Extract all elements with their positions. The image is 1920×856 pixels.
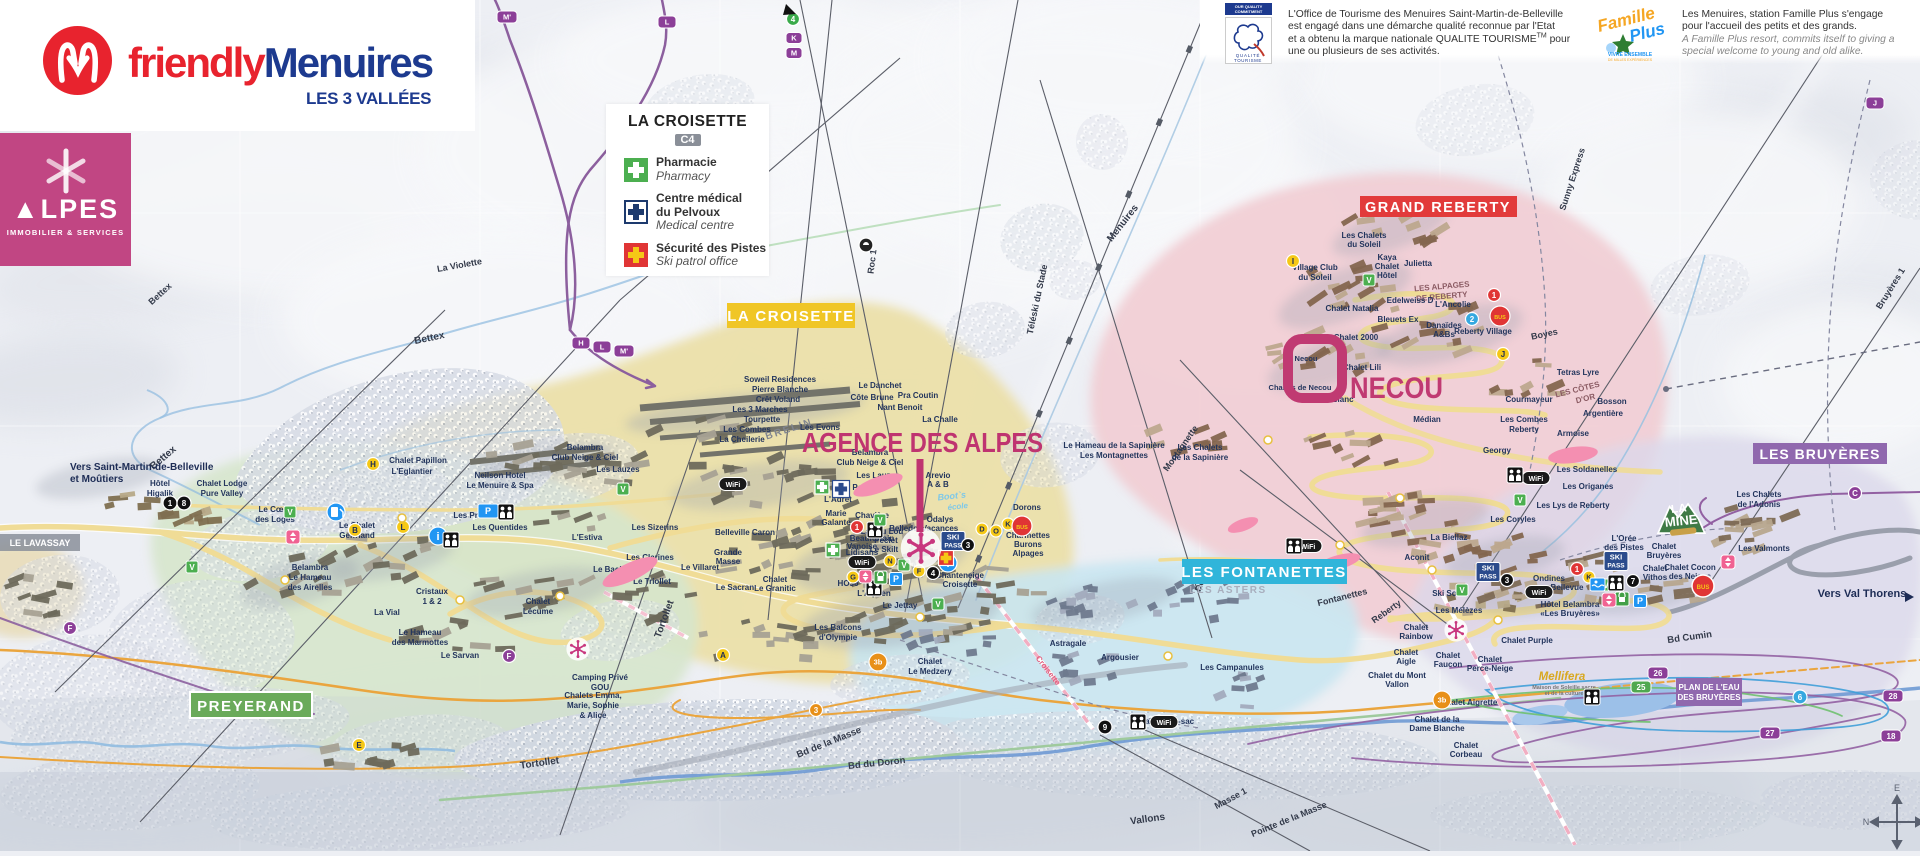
svg-text:du Soleil: du Soleil	[1298, 273, 1331, 282]
svg-text:Vallon: Vallon	[1385, 680, 1409, 689]
svg-text:Reberty: Reberty	[1509, 425, 1539, 434]
svg-text:Hôtel Belambra: Hôtel Belambra	[1541, 600, 1600, 609]
svg-text:Les Campanules: Les Campanules	[1200, 663, 1264, 672]
svg-text:V: V	[287, 508, 293, 517]
svg-text:Les Chalets: Les Chalets	[1342, 231, 1387, 240]
svg-text:des Pistes: des Pistes	[1604, 543, 1644, 552]
svg-text:Julietta: Julietta	[1404, 259, 1433, 268]
svg-text:H: H	[370, 460, 376, 469]
svg-text:B: B	[352, 526, 358, 535]
svg-text:LA CROISETTE: LA CROISETTE	[727, 308, 854, 325]
svg-text:Georgy: Georgy	[1483, 446, 1512, 455]
svg-text:Chalets Emma,: Chalets Emma,	[564, 691, 621, 700]
svg-text:des Airelles: des Airelles	[288, 583, 333, 592]
svg-text:Bleuets Ex: Bleuets Ex	[1378, 315, 1419, 324]
svg-text:4: 4	[791, 15, 796, 24]
svg-text:de la Sapinière: de la Sapinière	[1172, 453, 1229, 462]
svg-text:PASS: PASS	[1479, 574, 1497, 581]
svg-text:H: H	[578, 339, 583, 348]
svg-text:Soweil Residences: Soweil Residences	[744, 375, 817, 384]
svg-text:Le Hameau: Le Hameau	[399, 628, 442, 637]
svg-text:Rainbow: Rainbow	[1399, 632, 1433, 641]
svg-text:Odalys: Odalys	[927, 515, 954, 524]
svg-text:Necou: Necou	[1295, 354, 1318, 363]
svg-text:d'Olympie: d'Olympie	[819, 633, 858, 642]
svg-text:Vers Val Thorens: Vers Val Thorens	[1818, 588, 1907, 600]
svg-text:L'Eglantier: L'Eglantier	[391, 467, 432, 476]
svg-text:1: 1	[855, 523, 860, 532]
svg-text:3: 3	[966, 541, 971, 550]
svg-text:GRAND REBERTY: GRAND REBERTY	[1365, 200, 1511, 216]
svg-text:et Moûtiers: et Moûtiers	[70, 474, 124, 485]
svg-text:Chalet: Chalet	[763, 575, 788, 584]
svg-text:PREYERAND: PREYERAND	[197, 698, 305, 715]
svg-text:DES BRUYÈRES: DES BRUYÈRES	[1677, 693, 1741, 702]
svg-text:Club Neige & Ciel: Club Neige & Ciel	[552, 453, 619, 462]
svg-text:I: I	[1292, 257, 1294, 266]
svg-text:V: V	[1459, 586, 1465, 595]
svg-text:Bosson: Bosson	[1597, 397, 1626, 406]
svg-text:O: O	[993, 527, 999, 536]
svg-text:K: K	[791, 34, 797, 43]
svg-text:P: P	[1637, 596, 1643, 606]
svg-text:1: 1	[168, 499, 173, 508]
svg-text:PASS: PASS	[1607, 563, 1625, 570]
svg-text:Vithos: Vithos	[1643, 573, 1668, 582]
svg-text:Galante: Galante	[821, 518, 851, 527]
svg-text:Marie: Marie	[826, 509, 847, 518]
svg-text:Dorons: Dorons	[1013, 503, 1042, 512]
svg-text:LES FONTANETTES: LES FONTANETTES	[1181, 564, 1347, 581]
svg-text:Chalet Purple: Chalet Purple	[1501, 636, 1553, 645]
svg-text:LES BRUYÈRES: LES BRUYÈRES	[1760, 446, 1881, 462]
svg-text:Corbeau: Corbeau	[1450, 750, 1483, 759]
svg-text:M: M	[791, 49, 797, 58]
svg-text:E: E	[356, 741, 362, 750]
svg-text:Chanteneige: Chanteneige	[936, 571, 985, 580]
svg-text:Le Skilt: Le Skilt	[870, 545, 899, 554]
svg-text:Chalets de Necou: Chalets de Necou	[1269, 383, 1332, 392]
svg-text:PLAN DE L'EAU: PLAN DE L'EAU	[1678, 683, 1739, 692]
svg-text:F: F	[507, 652, 512, 661]
svg-text:WiFi: WiFi	[1532, 590, 1547, 597]
svg-text:Chalet: Chalet	[1404, 623, 1429, 632]
svg-text:de l'Adonis: de l'Adonis	[1738, 500, 1781, 509]
svg-text:L'Orée: L'Orée	[1611, 534, 1637, 543]
svg-text:Hôtel: Hôtel	[150, 479, 170, 488]
svg-text:Les Balcons: Les Balcons	[814, 623, 862, 632]
svg-text:Chalet de la: Chalet de la	[1415, 715, 1460, 724]
svg-text:Chalet: Chalet	[1394, 648, 1419, 657]
svg-text:Pierre Blanche: Pierre Blanche	[752, 385, 809, 394]
svg-text:Grande: Grande	[714, 548, 743, 557]
svg-text:L'Ancolie: L'Ancolie	[1435, 300, 1471, 309]
svg-text:SKI: SKI	[947, 533, 960, 542]
svg-text:Dame Blanche: Dame Blanche	[1409, 724, 1465, 733]
svg-text:Club Neige & Ciel: Club Neige & Ciel	[837, 458, 904, 467]
svg-text:Bellevue: Bellevue	[1551, 583, 1584, 592]
svg-text:G: G	[850, 573, 856, 582]
svg-text:BUS: BUS	[1494, 315, 1506, 321]
svg-text:Le Menuire & Spa: Le Menuire & Spa	[466, 481, 534, 490]
svg-text:P: P	[893, 574, 899, 584]
svg-text:WiFi: WiFi	[1157, 720, 1172, 727]
svg-text:Cristaux: Cristaux	[416, 587, 449, 596]
svg-text:«Les Bruyères»: «Les Bruyères»	[1540, 609, 1600, 618]
svg-text:Les Chalets: Les Chalets	[1178, 443, 1223, 452]
svg-text:L: L	[665, 18, 670, 27]
svg-text:V: V	[877, 516, 883, 525]
svg-text:J: J	[1501, 350, 1505, 359]
svg-text:du Soleil: du Soleil	[1347, 240, 1380, 249]
svg-text:Courmayeur: Courmayeur	[1505, 395, 1552, 404]
svg-text:LE LAVASSAY: LE LAVASSAY	[10, 538, 71, 548]
svg-text:Les Lys de Reberty: Les Lys de Reberty	[1536, 501, 1610, 510]
svg-text:Chalet: Chalet	[1478, 655, 1503, 664]
svg-text:& Alice: & Alice	[580, 711, 607, 720]
svg-text:Alpages: Alpages	[1012, 549, 1044, 558]
svg-text:Côte Brune: Côte Brune	[850, 393, 894, 402]
svg-text:Kaya: Kaya	[1377, 253, 1397, 262]
svg-text:Argentière: Argentière	[1583, 409, 1624, 418]
svg-text:SKI: SKI	[1482, 564, 1495, 573]
svg-text:Le Triollet: Le Triollet	[633, 577, 671, 586]
svg-text:La Biellaz: La Biellaz	[1431, 533, 1468, 542]
svg-text:Tetras Lyre: Tetras Lyre	[1557, 368, 1600, 377]
svg-text:3b: 3b	[874, 658, 883, 667]
svg-text:D: D	[979, 525, 985, 534]
svg-text:2: 2	[1470, 315, 1475, 324]
svg-text:Le Villaret: Le Villaret	[681, 563, 719, 572]
svg-text:M': M'	[620, 347, 628, 356]
svg-text:8: 8	[182, 499, 187, 508]
svg-text:La Cheilerie: La Cheilerie	[719, 435, 765, 444]
svg-text:A & B: A & B	[927, 480, 949, 489]
svg-text:Reberty Village: Reberty Village	[1454, 327, 1512, 336]
svg-text:SKI: SKI	[1610, 553, 1623, 562]
svg-text:3b: 3b	[1438, 696, 1447, 705]
svg-text:Le Sarvan: Le Sarvan	[441, 651, 479, 660]
svg-text:Le Danchet: Le Danchet	[858, 381, 901, 390]
svg-text:6: 6	[1798, 693, 1803, 702]
svg-text:Les Montagnettes: Les Montagnettes	[1080, 451, 1149, 460]
svg-text:1: 1	[1575, 565, 1580, 574]
svg-text:Chalet Cocon: Chalet Cocon	[1664, 563, 1716, 572]
svg-text:Croisette: Croisette	[943, 580, 978, 589]
svg-text:Perce-Neige: Perce-Neige	[1467, 664, 1514, 673]
svg-text:E: E	[1894, 783, 1900, 793]
svg-text:Astragale: Astragale	[1050, 639, 1087, 648]
svg-text:3: 3	[814, 706, 819, 715]
svg-text:Les 3 Marches: Les 3 Marches	[732, 405, 788, 414]
svg-text:L: L	[600, 343, 605, 352]
svg-text:Les Origanes: Les Origanes	[1563, 482, 1614, 491]
svg-text:Hôtel: Hôtel	[1377, 271, 1397, 280]
svg-text:A&Bs: A&Bs	[1433, 330, 1455, 339]
svg-text:Belambra: Belambra	[567, 443, 604, 452]
svg-text:F: F	[68, 624, 73, 633]
svg-text:Les Chalets: Les Chalets	[1737, 490, 1782, 499]
svg-text:V: V	[901, 561, 907, 570]
svg-text:Bruyères: Bruyères	[1647, 551, 1682, 560]
svg-text:Chalet: Chalet	[1652, 542, 1677, 551]
svg-text:L: L	[401, 523, 406, 532]
svg-text:C: C	[1852, 489, 1858, 498]
svg-text:1 & 2: 1 & 2	[422, 597, 442, 606]
svg-text:Le Jettay: Le Jettay	[883, 601, 918, 610]
svg-text:3: 3	[1505, 576, 1510, 585]
svg-text:La Challe: La Challe	[922, 415, 958, 424]
svg-text:Burons: Burons	[1014, 540, 1043, 549]
svg-text:Belleville Caron: Belleville Caron	[715, 528, 775, 537]
svg-text:i: i	[436, 531, 439, 543]
svg-text:Le Medzery: Le Medzery	[908, 667, 952, 676]
svg-text:V: V	[189, 563, 195, 572]
svg-text:Edelweiss D: Edelweiss D	[1387, 296, 1434, 305]
svg-text:Argousier: Argousier	[1101, 653, 1139, 662]
svg-text:Belambra: Belambra	[292, 563, 329, 572]
svg-text:Aconit: Aconit	[1405, 553, 1430, 562]
svg-text:1: 1	[1492, 291, 1497, 300]
svg-text:Chalet: Chalet	[1436, 651, 1461, 660]
svg-text:Les Combes: Les Combes	[723, 425, 771, 434]
svg-text:TOURISME: TOURISME	[1234, 58, 1262, 63]
svg-text:Armoise: Armoise	[1557, 429, 1590, 438]
svg-text:Crêt Voland: Crêt Voland	[756, 395, 800, 404]
svg-text:Nant Benoit: Nant Benoit	[878, 403, 923, 412]
svg-text:J: J	[1873, 99, 1877, 108]
svg-text:N: N	[887, 557, 892, 566]
svg-text:28: 28	[1889, 692, 1898, 701]
svg-text:K: K	[1005, 520, 1011, 529]
svg-text:Les Coryles: Les Coryles	[1490, 515, 1536, 524]
svg-text:Vers Saint-Martin-de-Bellevill: Vers Saint-Martin-de-Belleville	[70, 462, 214, 473]
svg-text:V: V	[935, 600, 941, 609]
svg-text:Camping Privé: Camping Privé	[572, 673, 629, 682]
svg-text:Ondines: Ondines	[1533, 574, 1566, 583]
svg-text:Tourpette: Tourpette	[744, 415, 781, 424]
svg-text:Chalet Natalia: Chalet Natalia	[1326, 304, 1379, 313]
svg-text:Le Granitic: Le Granitic	[754, 584, 796, 593]
svg-text:BUS: BUS	[1697, 585, 1710, 591]
svg-text:PASS: PASS	[944, 543, 962, 550]
svg-text:Le Hameau: Le Hameau	[289, 573, 332, 582]
svg-text:Mellifera: Mellifera	[1539, 671, 1586, 683]
svg-text:Chalet: Chalet	[1454, 741, 1479, 750]
svg-text:Les Soldanelles: Les Soldanelles	[1557, 465, 1618, 474]
svg-text:WiFi: WiFi	[726, 482, 741, 489]
svg-text:Chalet Papillon: Chalet Papillon	[389, 456, 447, 465]
svg-text:26: 26	[1654, 669, 1663, 678]
svg-text:L'Estiva: L'Estiva	[572, 533, 603, 542]
svg-text:LES ASTERS: LES ASTERS	[1189, 585, 1266, 596]
svg-text:18: 18	[1887, 732, 1896, 741]
svg-text:Chalet Lodge: Chalet Lodge	[197, 479, 248, 488]
svg-text:V: V	[620, 485, 626, 494]
svg-text:Neilson Hotel: Neilson Hotel	[474, 471, 525, 480]
svg-text:DE MILLES EXPÉRIENCES: DE MILLES EXPÉRIENCES	[1608, 57, 1653, 62]
svg-text:Pra Coutin: Pra Coutin	[898, 391, 939, 400]
svg-text:P: P	[485, 506, 491, 516]
svg-text:La Vial: La Vial	[374, 608, 400, 617]
svg-text:NECOU: NECOU	[1350, 372, 1443, 405]
svg-text:Aigle: Aigle	[1396, 657, 1416, 666]
svg-text:V: V	[1517, 496, 1523, 505]
svg-text:et de la culture: et de la culture	[1545, 691, 1584, 697]
svg-text:AGENCE DES ALPES: AGENCE DES ALPES	[802, 427, 1043, 458]
svg-text:Masse: Masse	[716, 557, 741, 566]
svg-text:Chalet: Chalet	[1375, 262, 1400, 271]
svg-text:Chalet du Mont: Chalet du Mont	[1368, 671, 1426, 680]
svg-text:des Marmottes: des Marmottes	[392, 638, 449, 647]
svg-text:Faucon: Faucon	[1434, 660, 1463, 669]
svg-text:A: A	[720, 651, 726, 660]
svg-text:Pure Valley: Pure Valley	[201, 489, 244, 498]
svg-text:Les Sizerins: Les Sizerins	[632, 523, 679, 532]
svg-text:Chalet: Chalet	[918, 657, 943, 666]
svg-text:Médian: Médian	[1413, 415, 1441, 424]
svg-text:Le Sacran: Le Sacran	[716, 583, 754, 592]
svg-text:Chalet: Chalet	[526, 597, 551, 606]
svg-text:WiFi: WiFi	[1301, 544, 1316, 551]
svg-text:M': M'	[503, 13, 511, 22]
svg-text:7: 7	[1631, 577, 1636, 586]
svg-text:Les Combes: Les Combes	[1500, 415, 1548, 424]
svg-text:9: 9	[1103, 723, 1108, 732]
svg-text:Le Hameau de la Sapinière: Le Hameau de la Sapinière	[1063, 441, 1165, 450]
svg-text:Arevio: Arevio	[926, 471, 951, 480]
svg-text:4: 4	[931, 569, 936, 578]
svg-text:27: 27	[1766, 729, 1775, 738]
svg-text:WiFi: WiFi	[1529, 476, 1544, 483]
svg-text:Marie, Sophie: Marie, Sophie	[567, 701, 620, 710]
svg-text:V: V	[1366, 276, 1372, 285]
svg-text:Les Lauzes: Les Lauzes	[596, 465, 640, 474]
svg-text:Chalet Lili: Chalet Lili	[1343, 363, 1381, 372]
svg-text:WiFi: WiFi	[855, 560, 870, 567]
svg-text:25: 25	[1637, 683, 1646, 692]
svg-text:N: N	[1863, 817, 1870, 827]
svg-text:BUS: BUS	[1016, 525, 1028, 531]
